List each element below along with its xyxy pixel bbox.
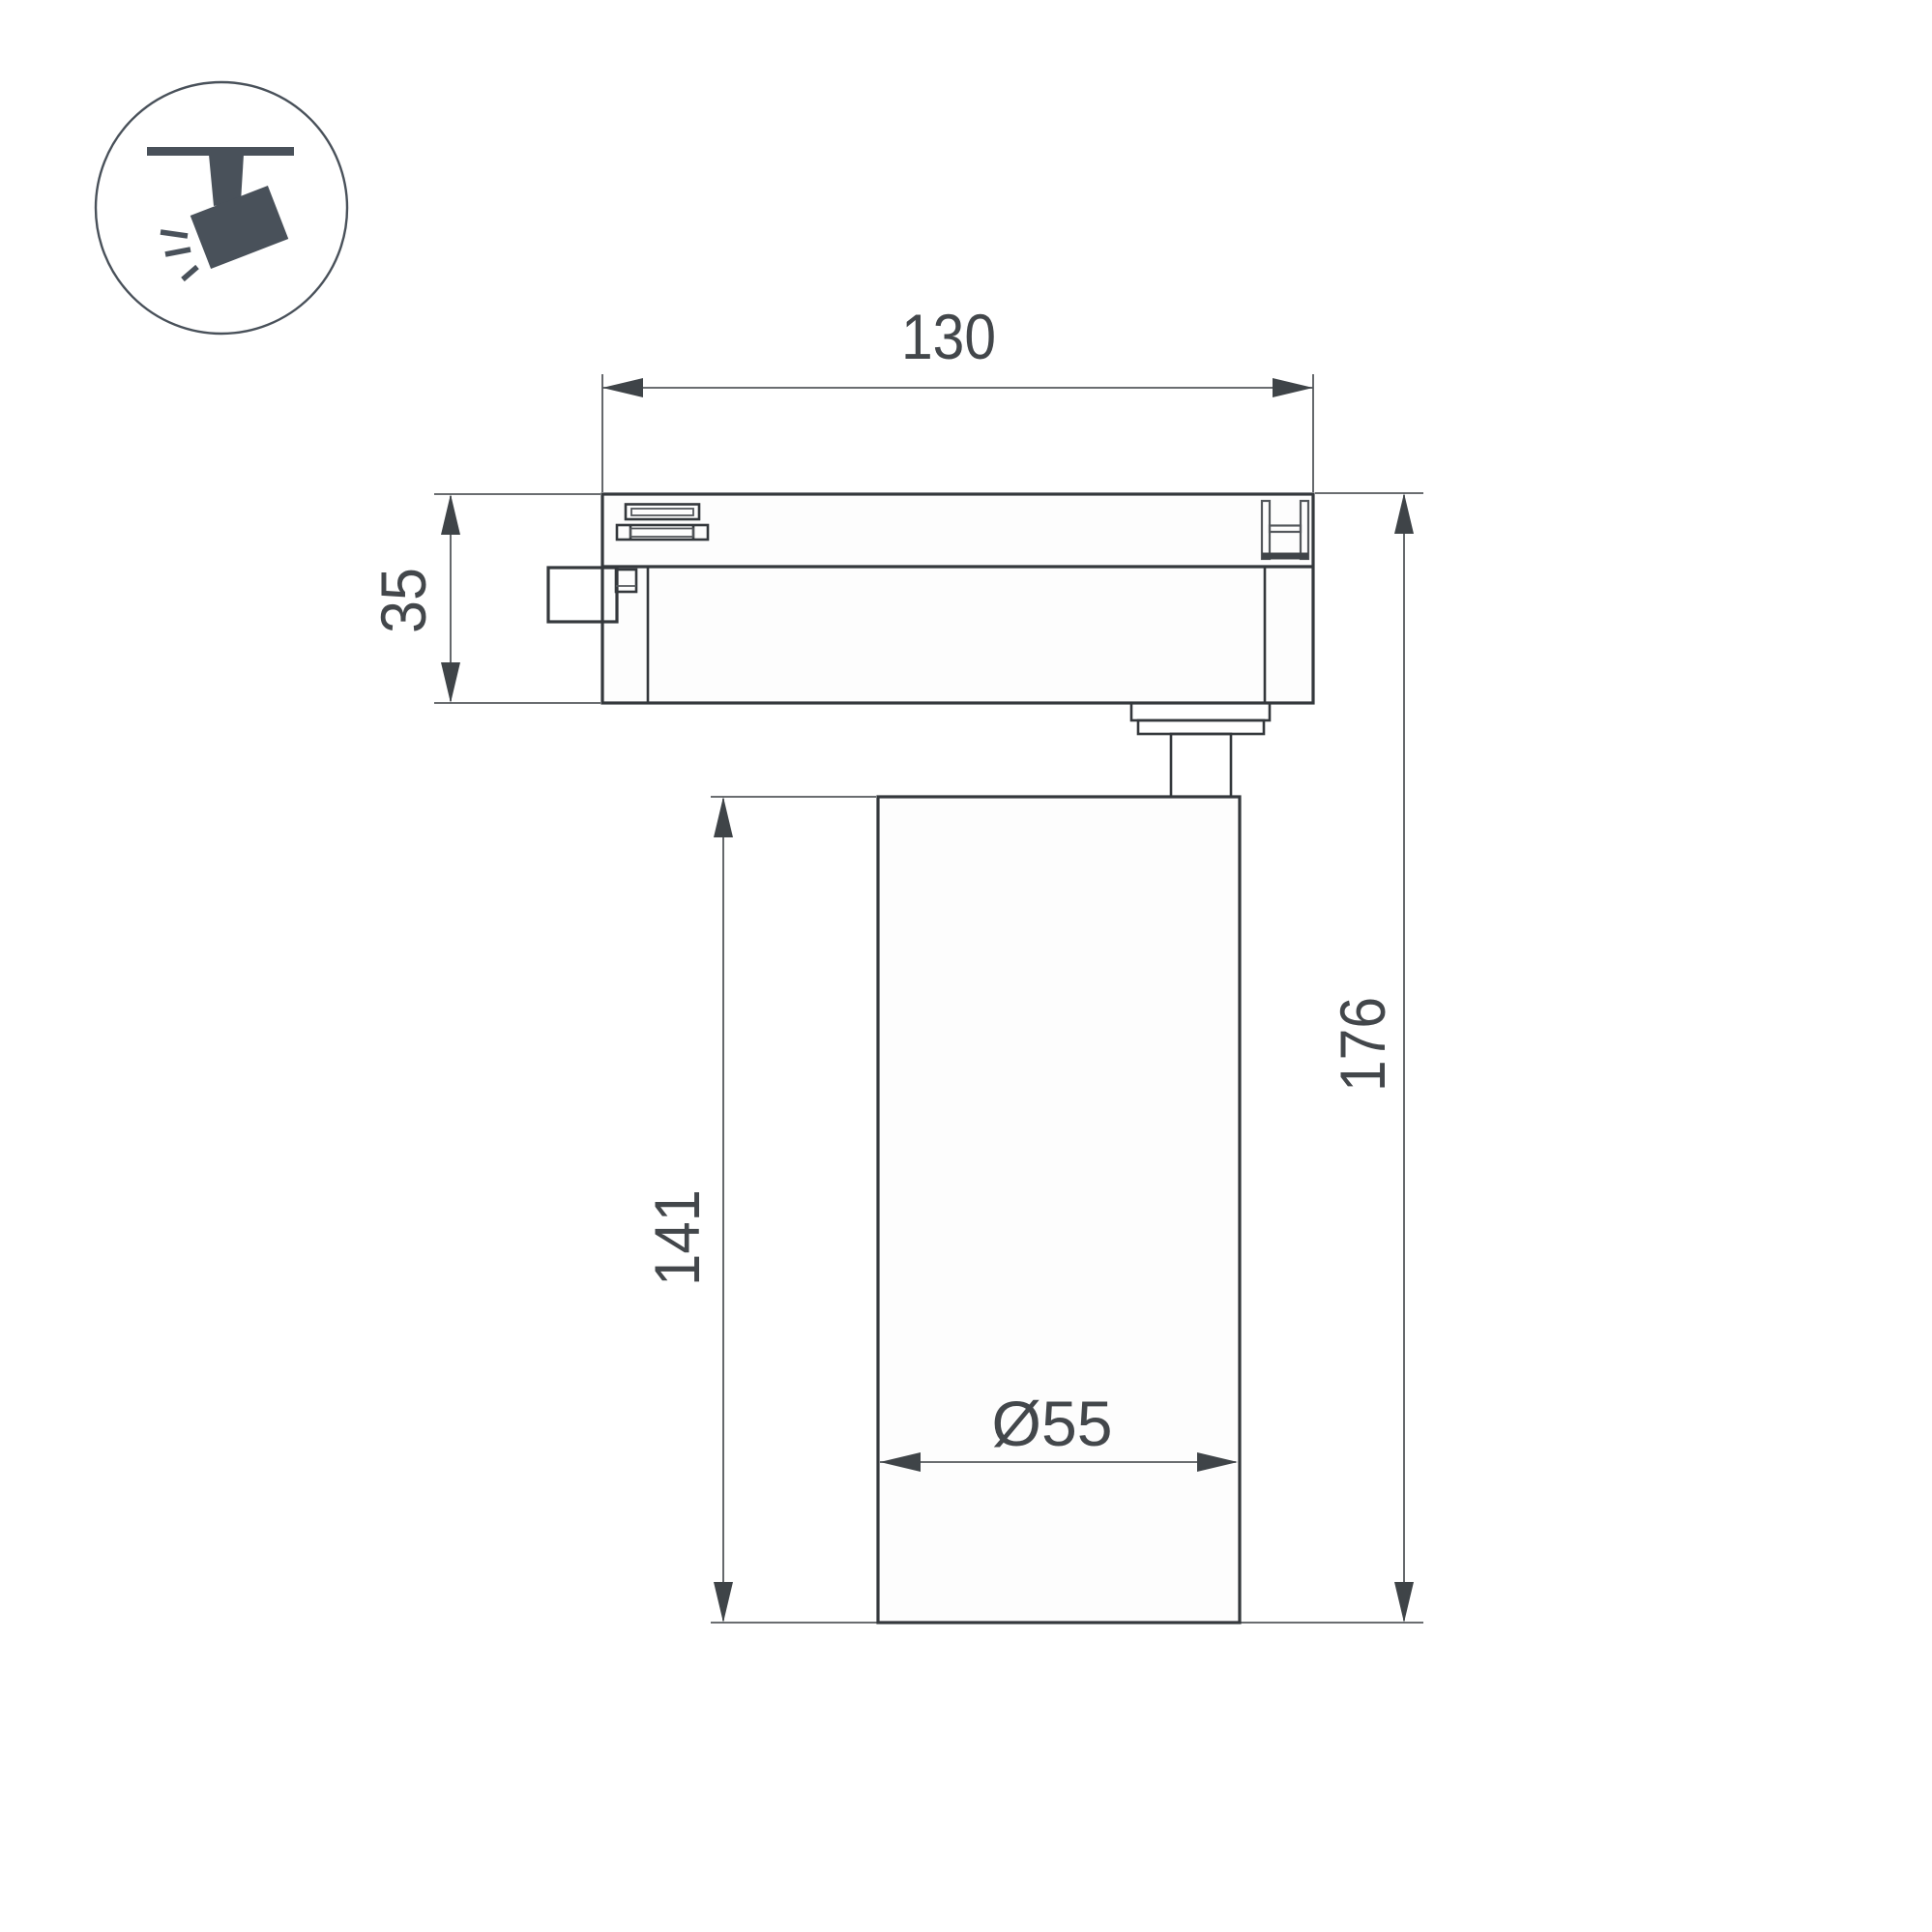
arrowhead-bottom (714, 1582, 733, 1623)
mounting-neck (1171, 734, 1231, 798)
track-spotlight-icon (96, 82, 347, 334)
arrowhead-top (714, 797, 733, 837)
technical-drawing-canvas: 130 35 (0, 0, 1932, 1932)
drawing-svg: 130 35 (0, 0, 1932, 1932)
arrowhead-bottom (1394, 1582, 1414, 1623)
step-flange-2 (1138, 720, 1264, 734)
track-adapter (548, 494, 1313, 703)
dim-body-height: 141 (641, 797, 876, 1623)
step-flange-1 (1131, 703, 1270, 720)
dim-body-height-label: 141 (641, 1189, 713, 1286)
arrowhead-top (1394, 493, 1414, 534)
dim-total-height-label: 176 (1327, 997, 1398, 1092)
lamp-body (878, 797, 1240, 1623)
dim-body-diameter-label: Ø55 (992, 1388, 1113, 1459)
icon-ceiling-track-bar (147, 147, 294, 156)
dim-track-width-label: 130 (901, 301, 996, 372)
arrowhead-right (1273, 378, 1313, 397)
dim-total-height: 176 (1315, 493, 1423, 1623)
arrowhead-top (441, 494, 460, 535)
dim-adapter-height: 35 (367, 494, 600, 703)
arrowhead-left (602, 378, 643, 397)
dim-adapter-height-label: 35 (367, 568, 439, 633)
arrowhead-bottom (441, 662, 460, 703)
dim-track-width: 130 (602, 301, 1313, 492)
